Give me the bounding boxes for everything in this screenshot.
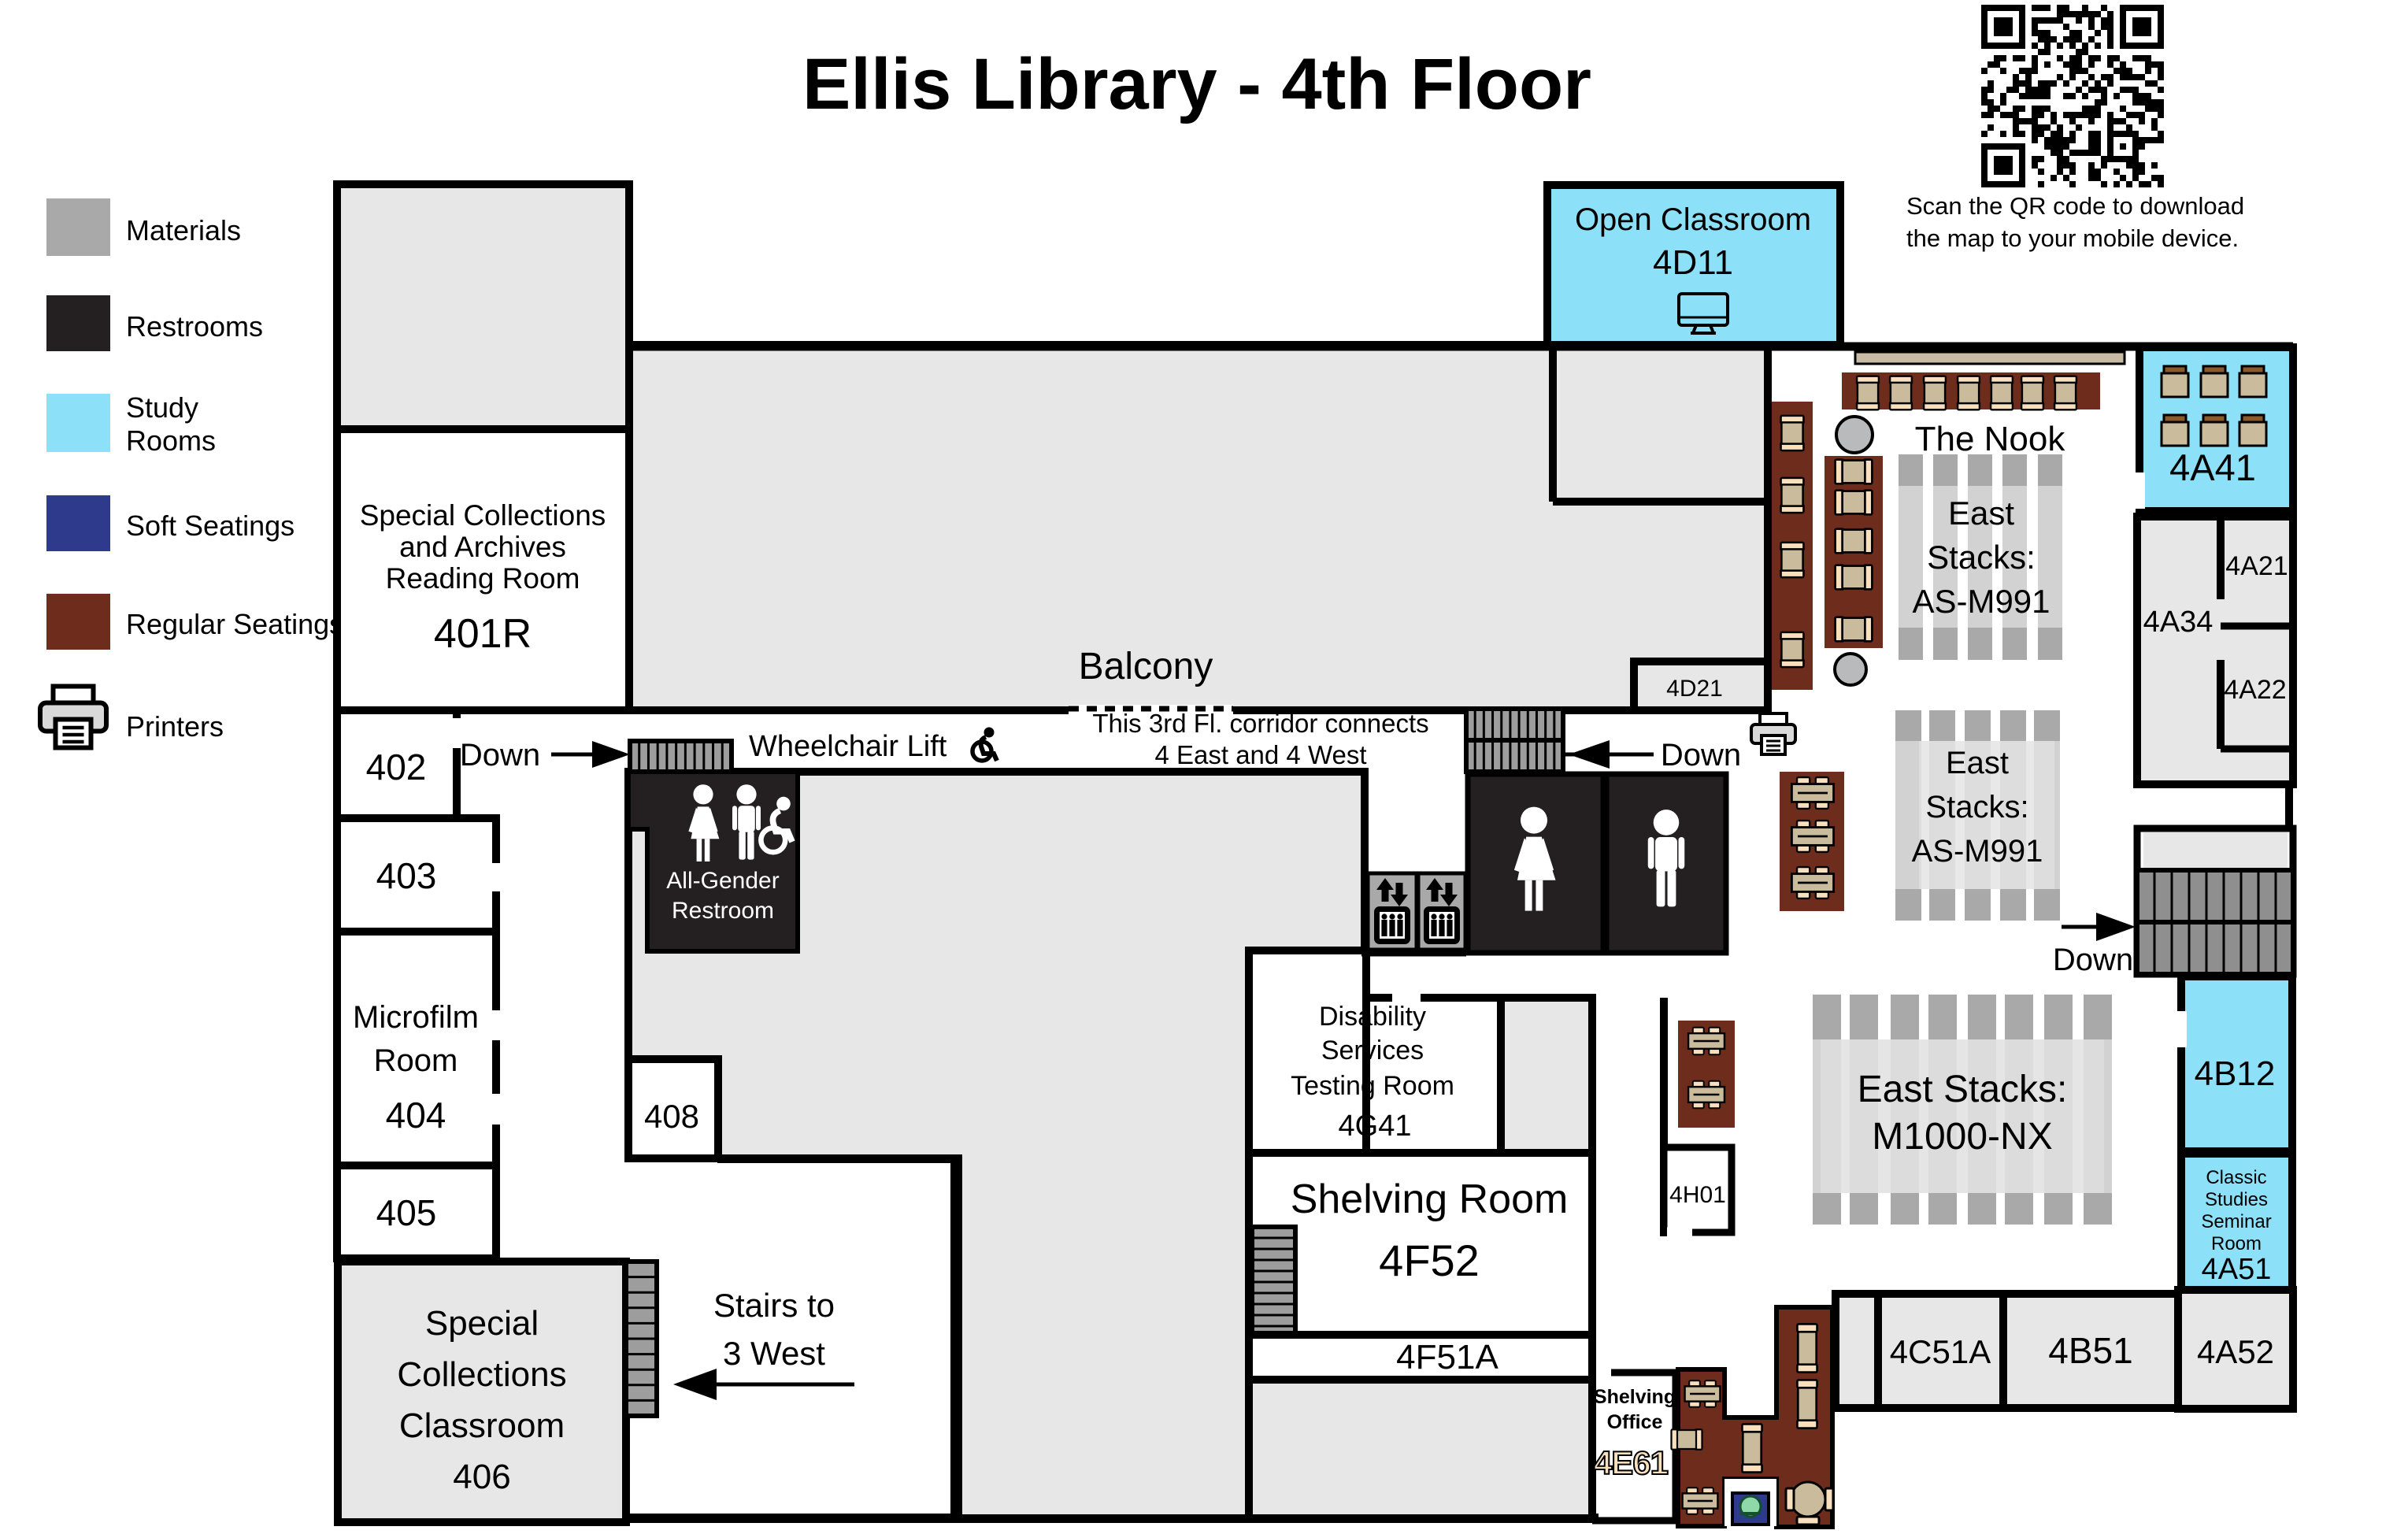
svg-text:Room: Room <box>2211 1233 2262 1254</box>
svg-text:406: 406 <box>453 1458 510 1496</box>
svg-text:Classic: Classic <box>2206 1167 2266 1188</box>
svg-text:4A22: 4A22 <box>2224 675 2286 705</box>
svg-text:Shelving: Shelving <box>1594 1386 1676 1408</box>
svg-text:403: 403 <box>376 855 437 896</box>
svg-text:Wheelchair Lift: Wheelchair Lift <box>749 730 947 763</box>
svg-text:Down: Down <box>1661 738 1741 773</box>
svg-text:Stacks:: Stacks: <box>1925 790 2028 824</box>
svg-text:East Stacks:: East Stacks: <box>1858 1069 2068 1110</box>
svg-text:404: 404 <box>386 1095 446 1136</box>
svg-text:Rooms: Rooms <box>126 424 216 457</box>
svg-text:4A51: 4A51 <box>2202 1253 2272 1286</box>
svg-text:4E61: 4E61 <box>1594 1444 1669 1481</box>
svg-text:4A41: 4A41 <box>2169 446 2256 488</box>
svg-text:4D11: 4D11 <box>1653 243 1733 282</box>
svg-text:Classroom: Classroom <box>399 1406 565 1445</box>
svg-text:4G41: 4G41 <box>1339 1110 1412 1143</box>
svg-text:4 East and 4 West: 4 East and 4 West <box>1154 740 1366 769</box>
svg-text:Soft Seatings: Soft Seatings <box>126 509 295 542</box>
svg-text:Special: Special <box>425 1304 539 1343</box>
svg-text:Restroom: Restroom <box>672 898 774 924</box>
svg-text:4C51A: 4C51A <box>1890 1333 1991 1370</box>
svg-text:Materials: Materials <box>126 214 241 246</box>
svg-text:Down: Down <box>460 738 540 773</box>
svg-text:Room: Room <box>374 1043 458 1078</box>
svg-text:Shelving Room: Shelving Room <box>1291 1176 1569 1222</box>
svg-text:4B51: 4B51 <box>2048 1330 2132 1371</box>
svg-text:3 West: 3 West <box>723 1335 825 1372</box>
svg-text:4D21: 4D21 <box>1666 676 1723 702</box>
svg-text:East: East <box>1946 746 2009 780</box>
svg-text:All-Gender: All-Gender <box>666 868 779 894</box>
svg-text:401R: 401R <box>434 611 532 657</box>
svg-text:Reading Room: Reading Room <box>386 562 580 595</box>
svg-text:Scan the QR code to download: Scan the QR code to download <box>1906 192 2244 220</box>
svg-text:Restrooms: Restrooms <box>126 310 263 343</box>
svg-text:4F52: 4F52 <box>1379 1236 1480 1285</box>
svg-text:4B12: 4B12 <box>2195 1054 2276 1093</box>
svg-text:4A34: 4A34 <box>2143 606 2214 639</box>
svg-text:408: 408 <box>644 1098 699 1135</box>
svg-text:402: 402 <box>366 747 427 787</box>
svg-text:Studies: Studies <box>2205 1189 2268 1210</box>
svg-text:Testing Room: Testing Room <box>1291 1071 1454 1101</box>
svg-text:M1000-NX: M1000-NX <box>1872 1116 2052 1158</box>
svg-text:The Nook: The Nook <box>1915 420 2066 458</box>
svg-text:Stairs to: Stairs to <box>713 1287 835 1324</box>
svg-text:Balcony: Balcony <box>1079 646 1213 687</box>
svg-text:Printers: Printers <box>126 710 224 743</box>
svg-text:Stacks:: Stacks: <box>1927 539 2036 576</box>
svg-text:Seminar: Seminar <box>2201 1211 2271 1232</box>
svg-text:Office: Office <box>1607 1411 1663 1433</box>
svg-text:AS-M991: AS-M991 <box>1912 834 2043 869</box>
svg-text:Down: Down <box>2053 943 2133 977</box>
svg-text:East: East <box>1948 495 2014 532</box>
svg-text:Ellis Library - 4th Floor: Ellis Library - 4th Floor <box>802 44 1591 124</box>
svg-text:and Archives: and Archives <box>399 531 566 563</box>
svg-text:Microfilm: Microfilm <box>353 1000 479 1035</box>
svg-text:Disability: Disability <box>1319 1002 1426 1032</box>
svg-text:Services: Services <box>1321 1036 1424 1065</box>
svg-text:405: 405 <box>376 1192 437 1233</box>
svg-text:Open Classroom: Open Classroom <box>1575 202 1811 237</box>
svg-text:4F51A: 4F51A <box>1396 1338 1499 1377</box>
svg-text:4A21: 4A21 <box>2225 551 2288 581</box>
svg-text:This 3rd Fl. corridor connects: This 3rd Fl. corridor connects <box>1092 709 1428 738</box>
svg-text:Study: Study <box>126 391 198 424</box>
svg-text:AS-M991: AS-M991 <box>1912 583 2050 620</box>
svg-text:the map to your mobile device.: the map to your mobile device. <box>1906 224 2239 252</box>
svg-text:Special Collections: Special Collections <box>360 499 606 532</box>
svg-text:4A52: 4A52 <box>2197 1333 2274 1370</box>
svg-text:Collections: Collections <box>397 1355 566 1394</box>
svg-text:Regular Seatings: Regular Seatings <box>126 608 343 640</box>
svg-text:4H01: 4H01 <box>1669 1182 1726 1208</box>
